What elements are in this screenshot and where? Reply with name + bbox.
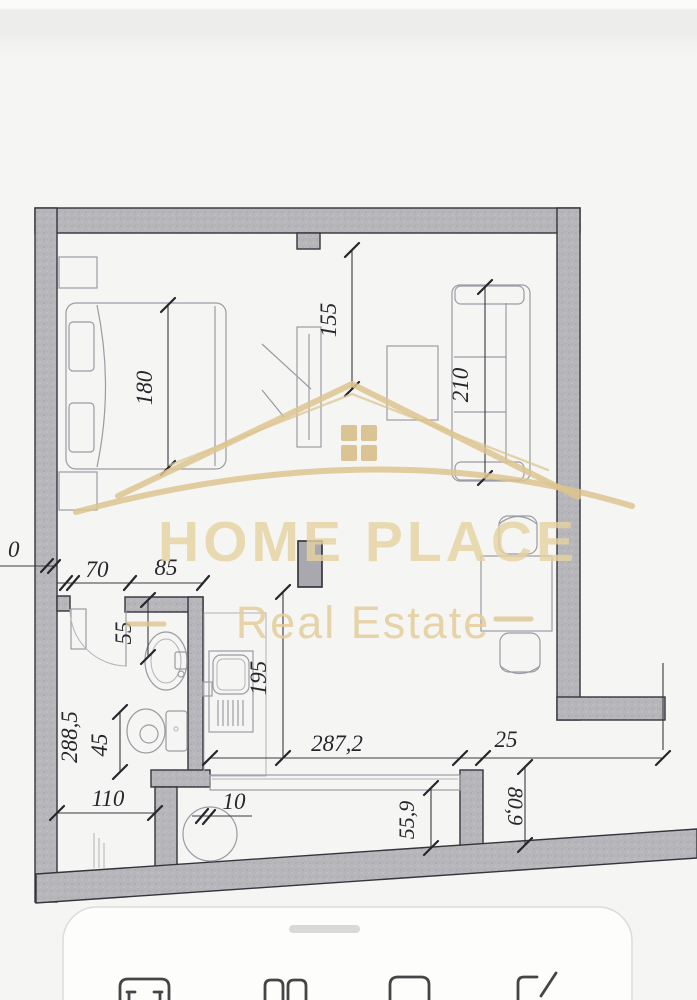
dim-ledge-depth: 80,9 (503, 787, 528, 826)
dim-toilet-offset: 45 (87, 734, 112, 757)
dim-hall-width: 110 (92, 786, 125, 811)
counter-bottom (210, 775, 460, 790)
dim-zero: 0 (8, 537, 20, 562)
wall-right (557, 208, 580, 720)
bottom-sheet (63, 907, 632, 1000)
wall-pier-bottom-right (460, 770, 483, 850)
dim-bed-width: 180 (132, 370, 157, 405)
door-jamb-pier (57, 596, 70, 611)
wall-top (35, 208, 580, 233)
dim-pier-width: 25 (495, 727, 518, 752)
watermark-brand: HOME PLACE (158, 510, 578, 574)
dim-sofa-length: 210 (448, 367, 473, 402)
drag-handle[interactable] (289, 925, 360, 933)
bathroom-wall-right (188, 597, 203, 777)
side-table (387, 346, 438, 420)
wall-bottom-diagonal (36, 829, 697, 903)
dim-kitchen-depth: 195 (246, 661, 271, 696)
dim-tv-offset: 155 (316, 303, 341, 338)
toilet (127, 709, 165, 753)
bathroom-wall-bottom (151, 770, 210, 787)
nightstand (59, 472, 97, 510)
wall-left (35, 208, 57, 902)
pillow (69, 322, 94, 371)
dim-room-width: 287,2 (311, 731, 363, 756)
floor-plan-svg: 180 155 210 0 70 85 55 45 (0, 0, 697, 1000)
chair (500, 633, 540, 672)
dim-niche-depth: 55,9 (394, 801, 419, 840)
window-icon (341, 425, 377, 461)
tv-stand (262, 327, 321, 447)
watermark-tagline: Real Estate (236, 597, 491, 648)
wall-pier-top (297, 233, 320, 249)
wall-pier-bottom-left (155, 787, 177, 871)
dim-door-width: 70 (86, 557, 110, 582)
nightstand (59, 257, 97, 288)
pillow (69, 403, 94, 452)
dim-bathroom-length: 288,5 (57, 711, 82, 763)
scanned-floor-plan-page: 180 155 210 0 70 85 55 45 (0, 0, 697, 1000)
wall-right-leg (557, 697, 665, 720)
dim-appliance-offset: 10 (223, 789, 247, 814)
